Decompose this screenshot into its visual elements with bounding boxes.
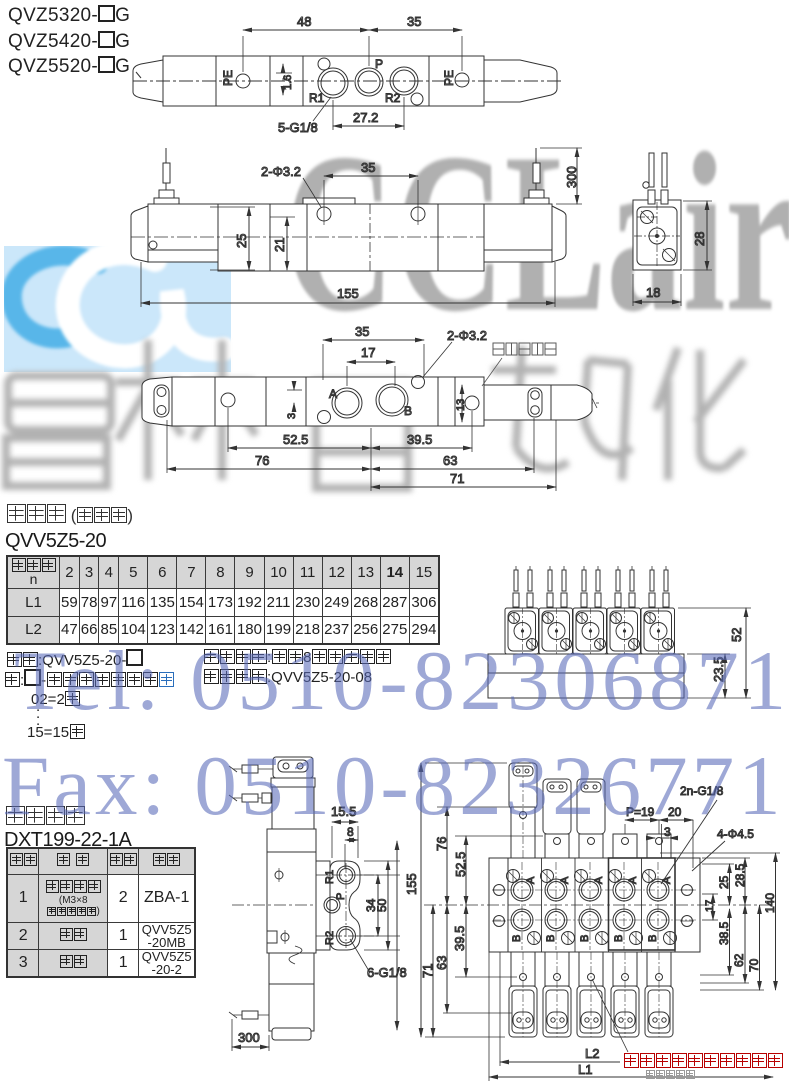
svg-text:A: A xyxy=(525,876,537,884)
svg-text:P: P xyxy=(335,893,347,900)
svg-text:300: 300 xyxy=(564,166,579,188)
svg-text:R2: R2 xyxy=(385,91,401,105)
svg-text:1.6: 1.6 xyxy=(282,75,294,90)
svg-text:P: P xyxy=(375,57,383,71)
svg-text:38.5: 38.5 xyxy=(717,921,731,945)
svg-text:35: 35 xyxy=(407,14,421,29)
svg-text:39.5: 39.5 xyxy=(452,926,467,951)
svg-text:35: 35 xyxy=(355,324,369,339)
svg-text:28: 28 xyxy=(692,232,707,246)
svg-text:39.5: 39.5 xyxy=(407,432,432,447)
svg-text:300: 300 xyxy=(238,1030,260,1045)
svg-text:63: 63 xyxy=(434,956,449,970)
svg-text:5-G1/8: 5-G1/8 xyxy=(278,120,318,135)
svg-text:18: 18 xyxy=(646,285,660,300)
svg-text:25: 25 xyxy=(234,234,249,248)
svg-text:28.5: 28.5 xyxy=(733,863,747,887)
svg-text:2-Φ3.2: 2-Φ3.2 xyxy=(447,328,487,343)
svg-text:21: 21 xyxy=(272,238,287,252)
svg-text:B: B xyxy=(404,404,412,418)
svg-text:52.5: 52.5 xyxy=(283,432,308,447)
svg-text:R1: R1 xyxy=(324,870,336,884)
svg-text:R1: R1 xyxy=(309,91,325,105)
svg-text:PE: PE xyxy=(442,70,456,86)
svg-text:6-G1/8: 6-G1/8 xyxy=(367,965,407,980)
svg-text:17: 17 xyxy=(704,900,716,912)
svg-text:3: 3 xyxy=(286,413,298,419)
svg-text:155: 155 xyxy=(337,286,359,301)
svg-text:76: 76 xyxy=(255,453,269,468)
svg-text:71: 71 xyxy=(420,964,435,978)
svg-text:35: 35 xyxy=(361,160,375,175)
svg-text:63: 63 xyxy=(443,453,457,468)
svg-text:R2: R2 xyxy=(324,931,336,945)
svg-text:50: 50 xyxy=(375,898,389,912)
svg-text:62: 62 xyxy=(732,953,746,967)
svg-text:L2: L2 xyxy=(585,1046,599,1061)
svg-text:A: A xyxy=(329,387,337,401)
svg-text:140: 140 xyxy=(763,893,777,913)
svg-text:PE: PE xyxy=(221,70,235,86)
svg-text:17: 17 xyxy=(361,345,375,360)
svg-text:52.5: 52.5 xyxy=(453,852,468,877)
svg-text:155: 155 xyxy=(404,873,419,895)
svg-text:L1: L1 xyxy=(578,1062,592,1077)
svg-text:27.2: 27.2 xyxy=(353,110,378,125)
svg-text:76: 76 xyxy=(434,837,449,851)
svg-text:48: 48 xyxy=(297,14,311,29)
svg-text:25: 25 xyxy=(717,875,731,889)
svg-text:2-Φ3.2: 2-Φ3.2 xyxy=(261,164,301,179)
svg-text:B: B xyxy=(511,935,523,942)
svg-text:71: 71 xyxy=(450,471,464,486)
svg-text:70: 70 xyxy=(747,958,761,972)
